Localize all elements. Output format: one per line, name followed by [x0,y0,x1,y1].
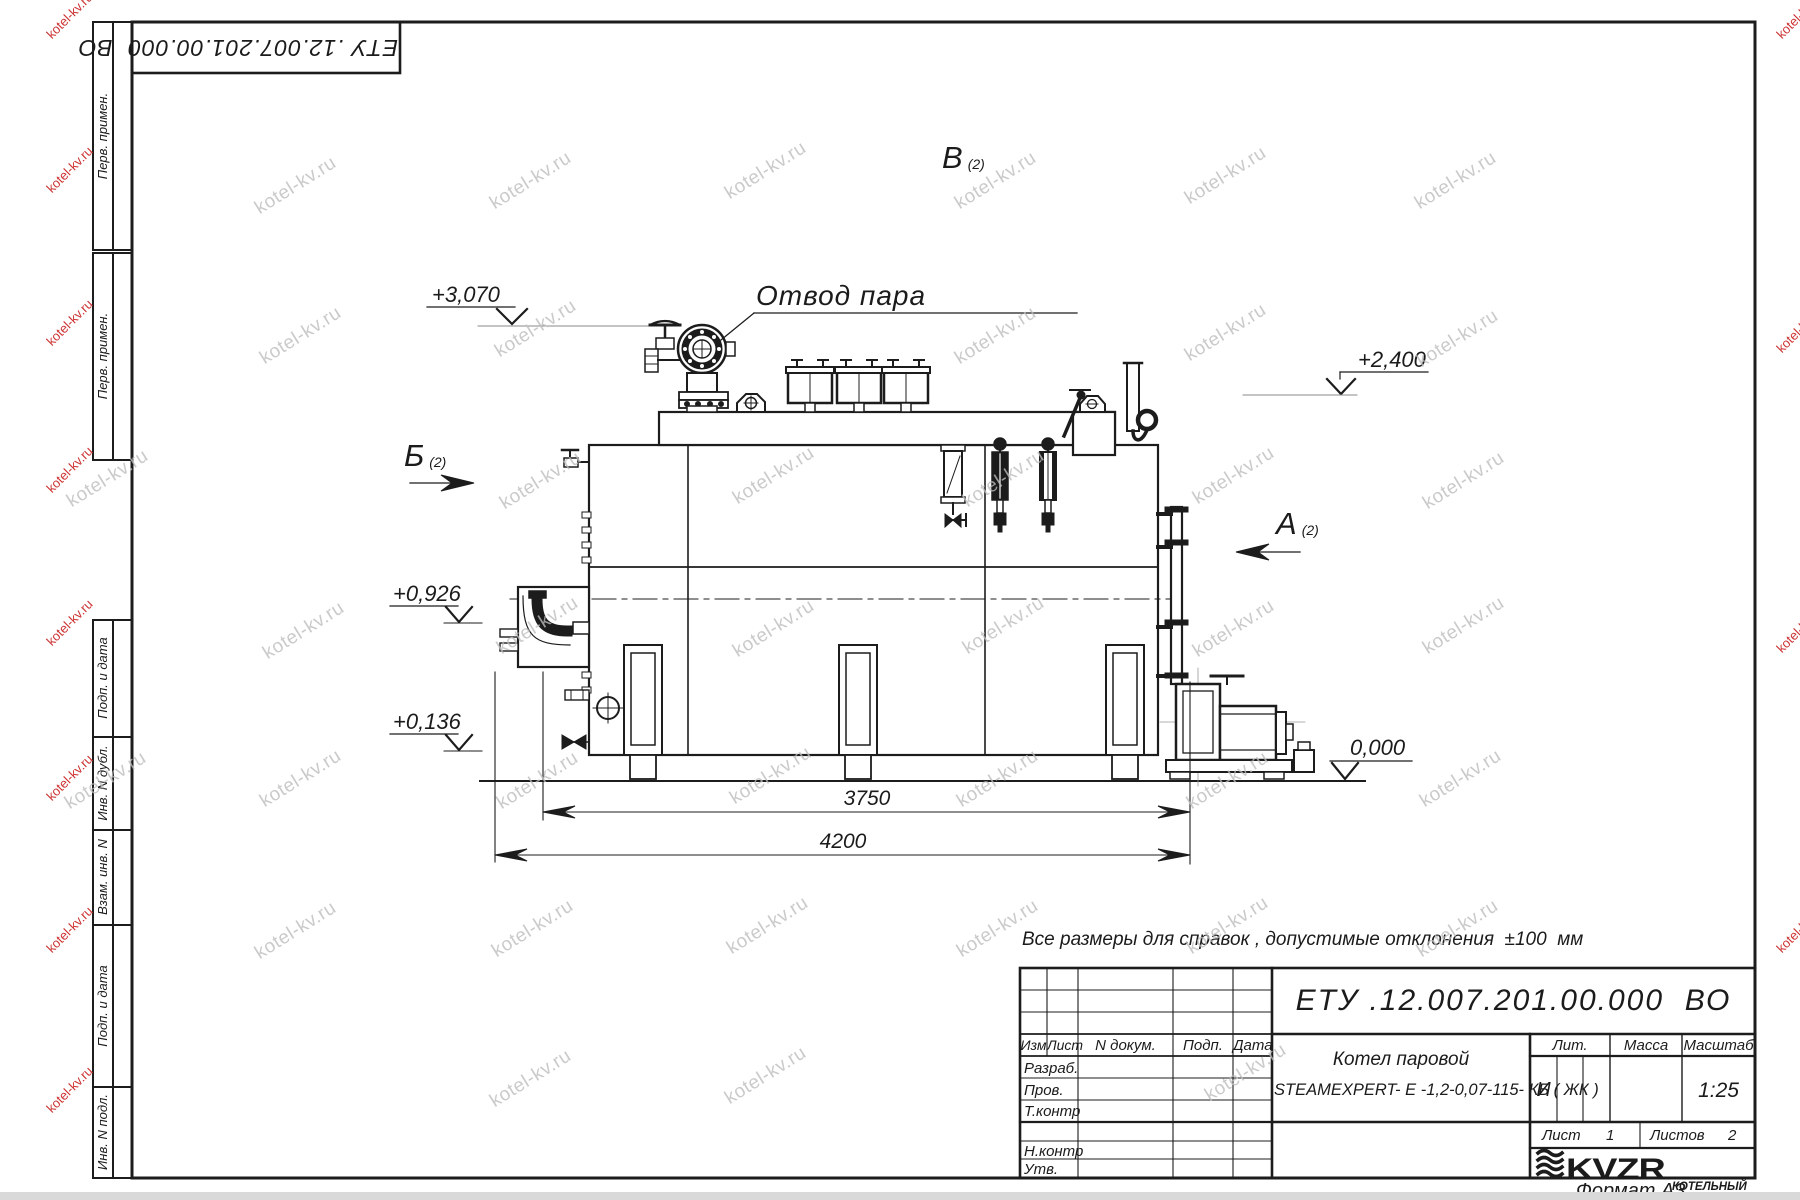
margin-label-inv-podl: Инв. N подл. [93,1032,113,1200]
col-date: Дата [1233,1038,1272,1053]
view-b-index: (2) [429,455,446,471]
scale-label: Масштаб [1682,1038,1755,1053]
col-sign: Подп. [1173,1038,1233,1053]
elevation-0000: 0,000 [1350,737,1405,759]
product-name-line2: STEAMEXPERT- Е -1,2-0,07-115- КБ ( ЖК ) [1274,1082,1528,1099]
sheets-label: Листов [1650,1128,1705,1143]
lit-label: Лит. [1530,1038,1610,1053]
dimension-3750: 3750 [812,788,922,809]
view-a-index: (2) [1302,523,1319,539]
elevation-0926: +0,926 [393,583,461,605]
feed-pump [1160,668,1314,786]
sheet-bottom-edge [0,1192,1800,1200]
view-v-index: (2) [968,157,985,173]
boiler-side-view-linework [0,0,1800,1200]
col-list: Лист [1047,1038,1078,1052]
top-stamp-designation: ЕТУ .12.007.201.00.000 ВО [134,25,398,71]
safety-valves [786,360,930,412]
margin-label-perv-primen-1: Перв. примен. [93,36,113,236]
drawing-sheet: ЕТУ .12.007.201.00.000 ВО Перв. примен. … [0,0,1800,1200]
margin-label-perv-primen-2: Перв. примен. [93,256,113,456]
row-checked: Пров. [1024,1083,1064,1098]
burner-box [500,587,589,749]
sheet-label: Лист [1542,1128,1581,1143]
elevation-0136: +0,136 [393,711,461,733]
col-izm: Изм [1020,1038,1047,1052]
view-label-b: Б (2) [404,440,446,471]
view-label-v: В (2) [942,142,985,173]
row-tcontrol: Т.контр [1024,1104,1080,1119]
kvzr-logo-coil [1538,1151,1562,1177]
mass-label: Масса [1610,1038,1682,1053]
reference-note: Все размеры для справок , допустимые отк… [1022,930,1583,949]
sheet-value: 1 [1606,1128,1614,1143]
feed-pipe [1158,507,1188,684]
row-approved: Утв. [1024,1162,1058,1177]
view-v-letter: В [942,142,963,173]
scale-value: 1:25 [1682,1080,1755,1101]
col-doc: N докум. [1078,1038,1173,1053]
view-label-a: А (2) [1276,508,1319,539]
product-name-line1: Котел паровой [1272,1050,1530,1069]
row-ncontrol: Н.контр [1024,1144,1083,1159]
row-developed: Разраб. [1024,1061,1078,1076]
sheets-value: 2 [1728,1128,1736,1143]
titleblock-designation: ЕТУ .12.007.201.00.000 ВО [1272,986,1755,1016]
elevation-3070: +3,070 [432,284,500,306]
steam-outlet-valve [478,321,735,412]
callout-steam-outlet: Отвод пара [756,282,926,310]
view-b-letter: Б [404,440,424,471]
view-a-letter: А [1276,508,1297,539]
dimension-4200: 4200 [788,831,898,852]
elevation-2400: +2,400 [1358,349,1426,371]
